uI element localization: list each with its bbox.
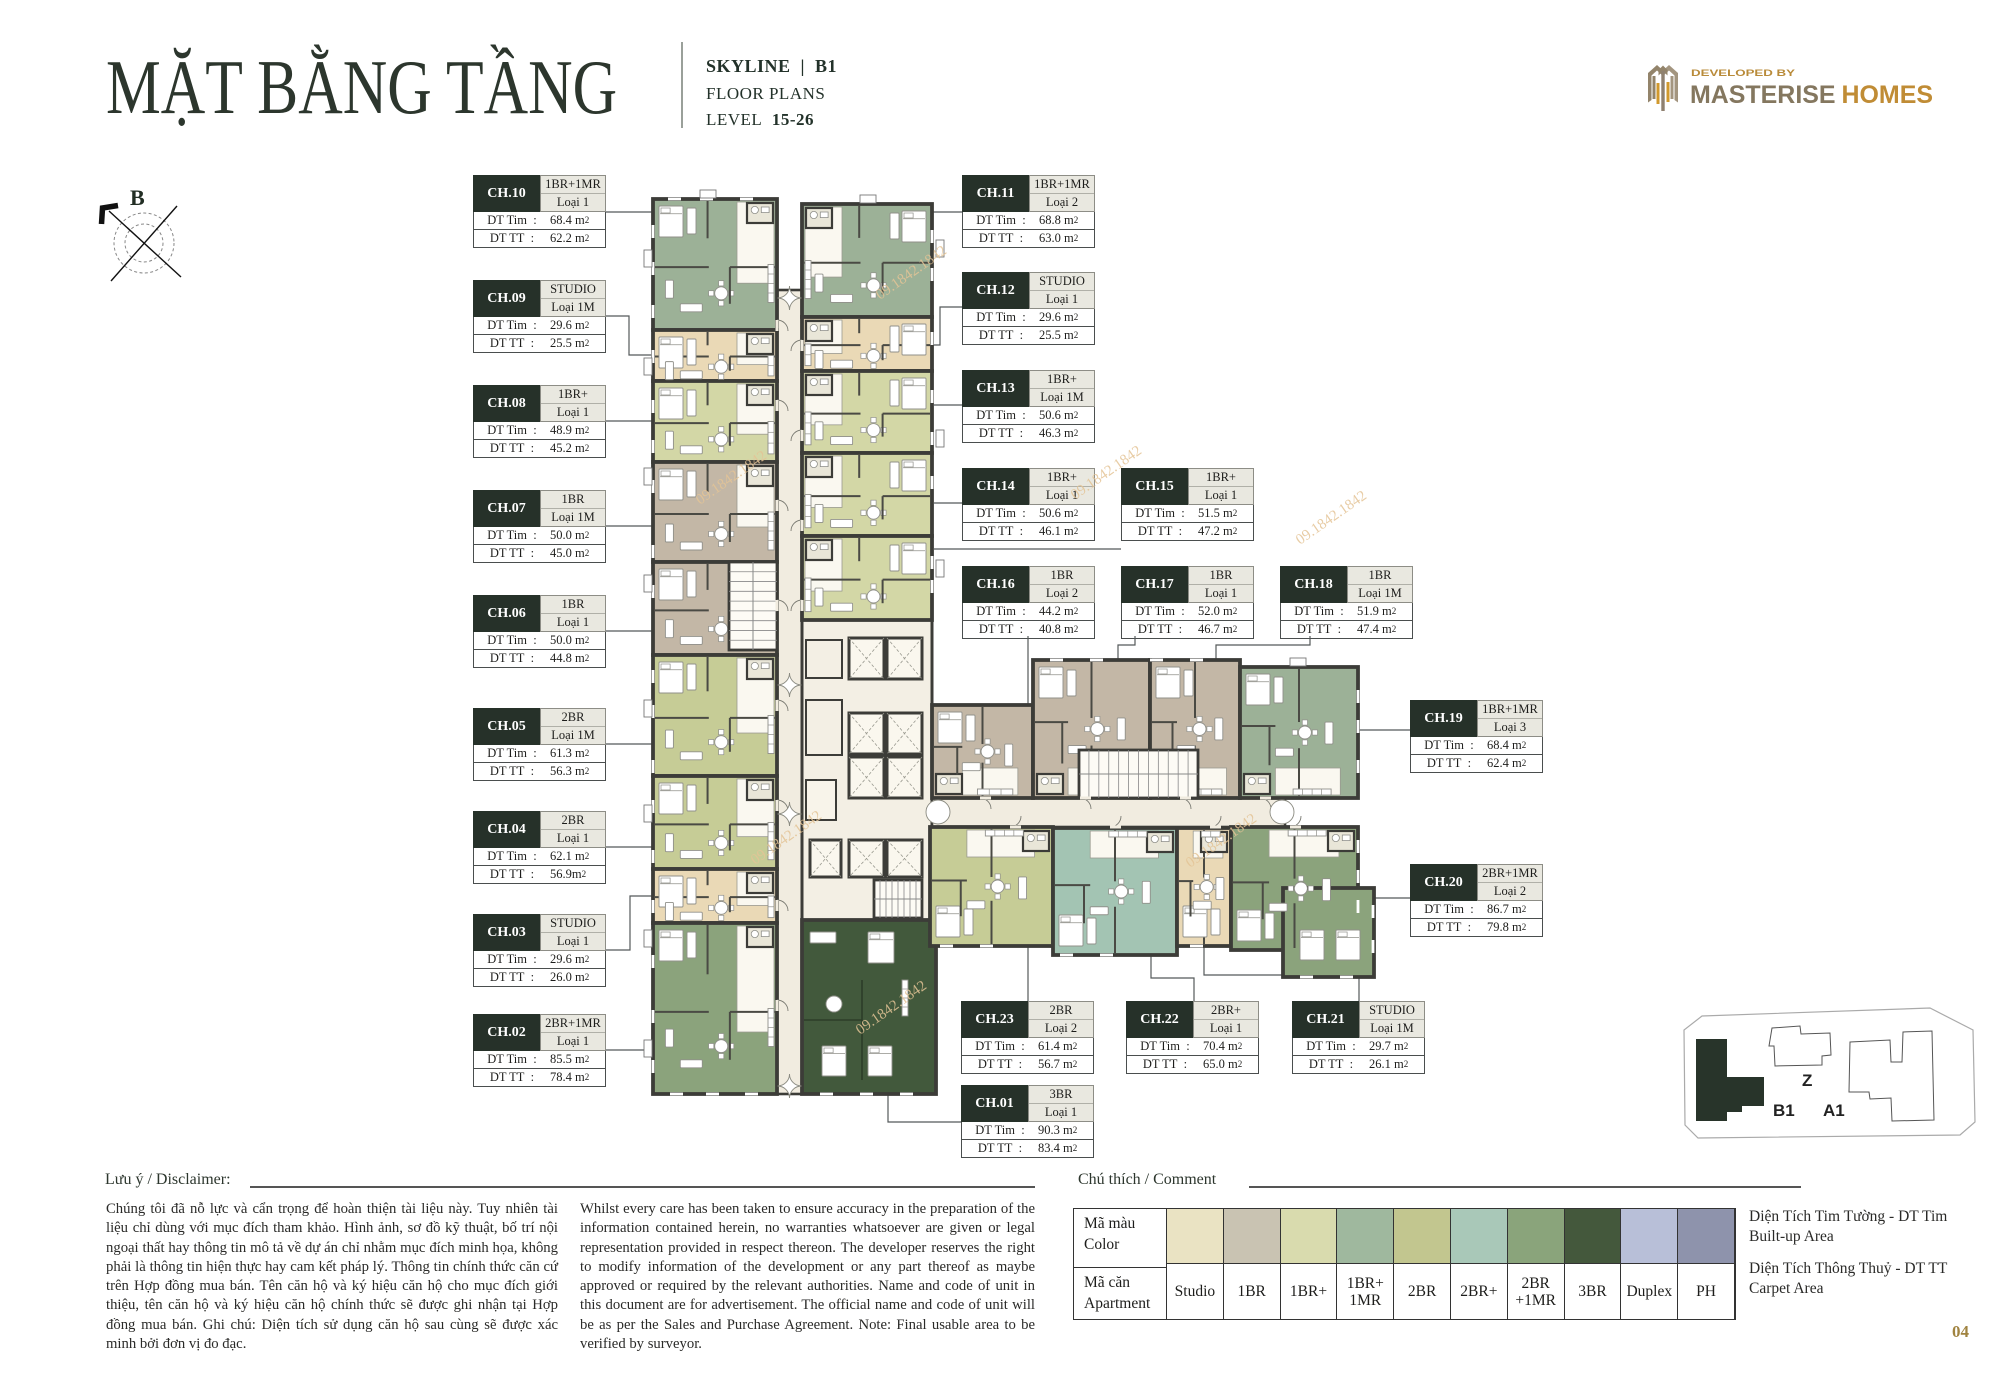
svg-text:09.1842.1842: 09.1842.1842 [1293,488,1370,548]
svg-text:Z: Z [1802,1071,1812,1090]
svg-text:09.1842.1842: 09.1842.1842 [1068,443,1145,503]
svg-text:B1: B1 [1773,1101,1795,1120]
svg-text:A1: A1 [1823,1101,1845,1120]
